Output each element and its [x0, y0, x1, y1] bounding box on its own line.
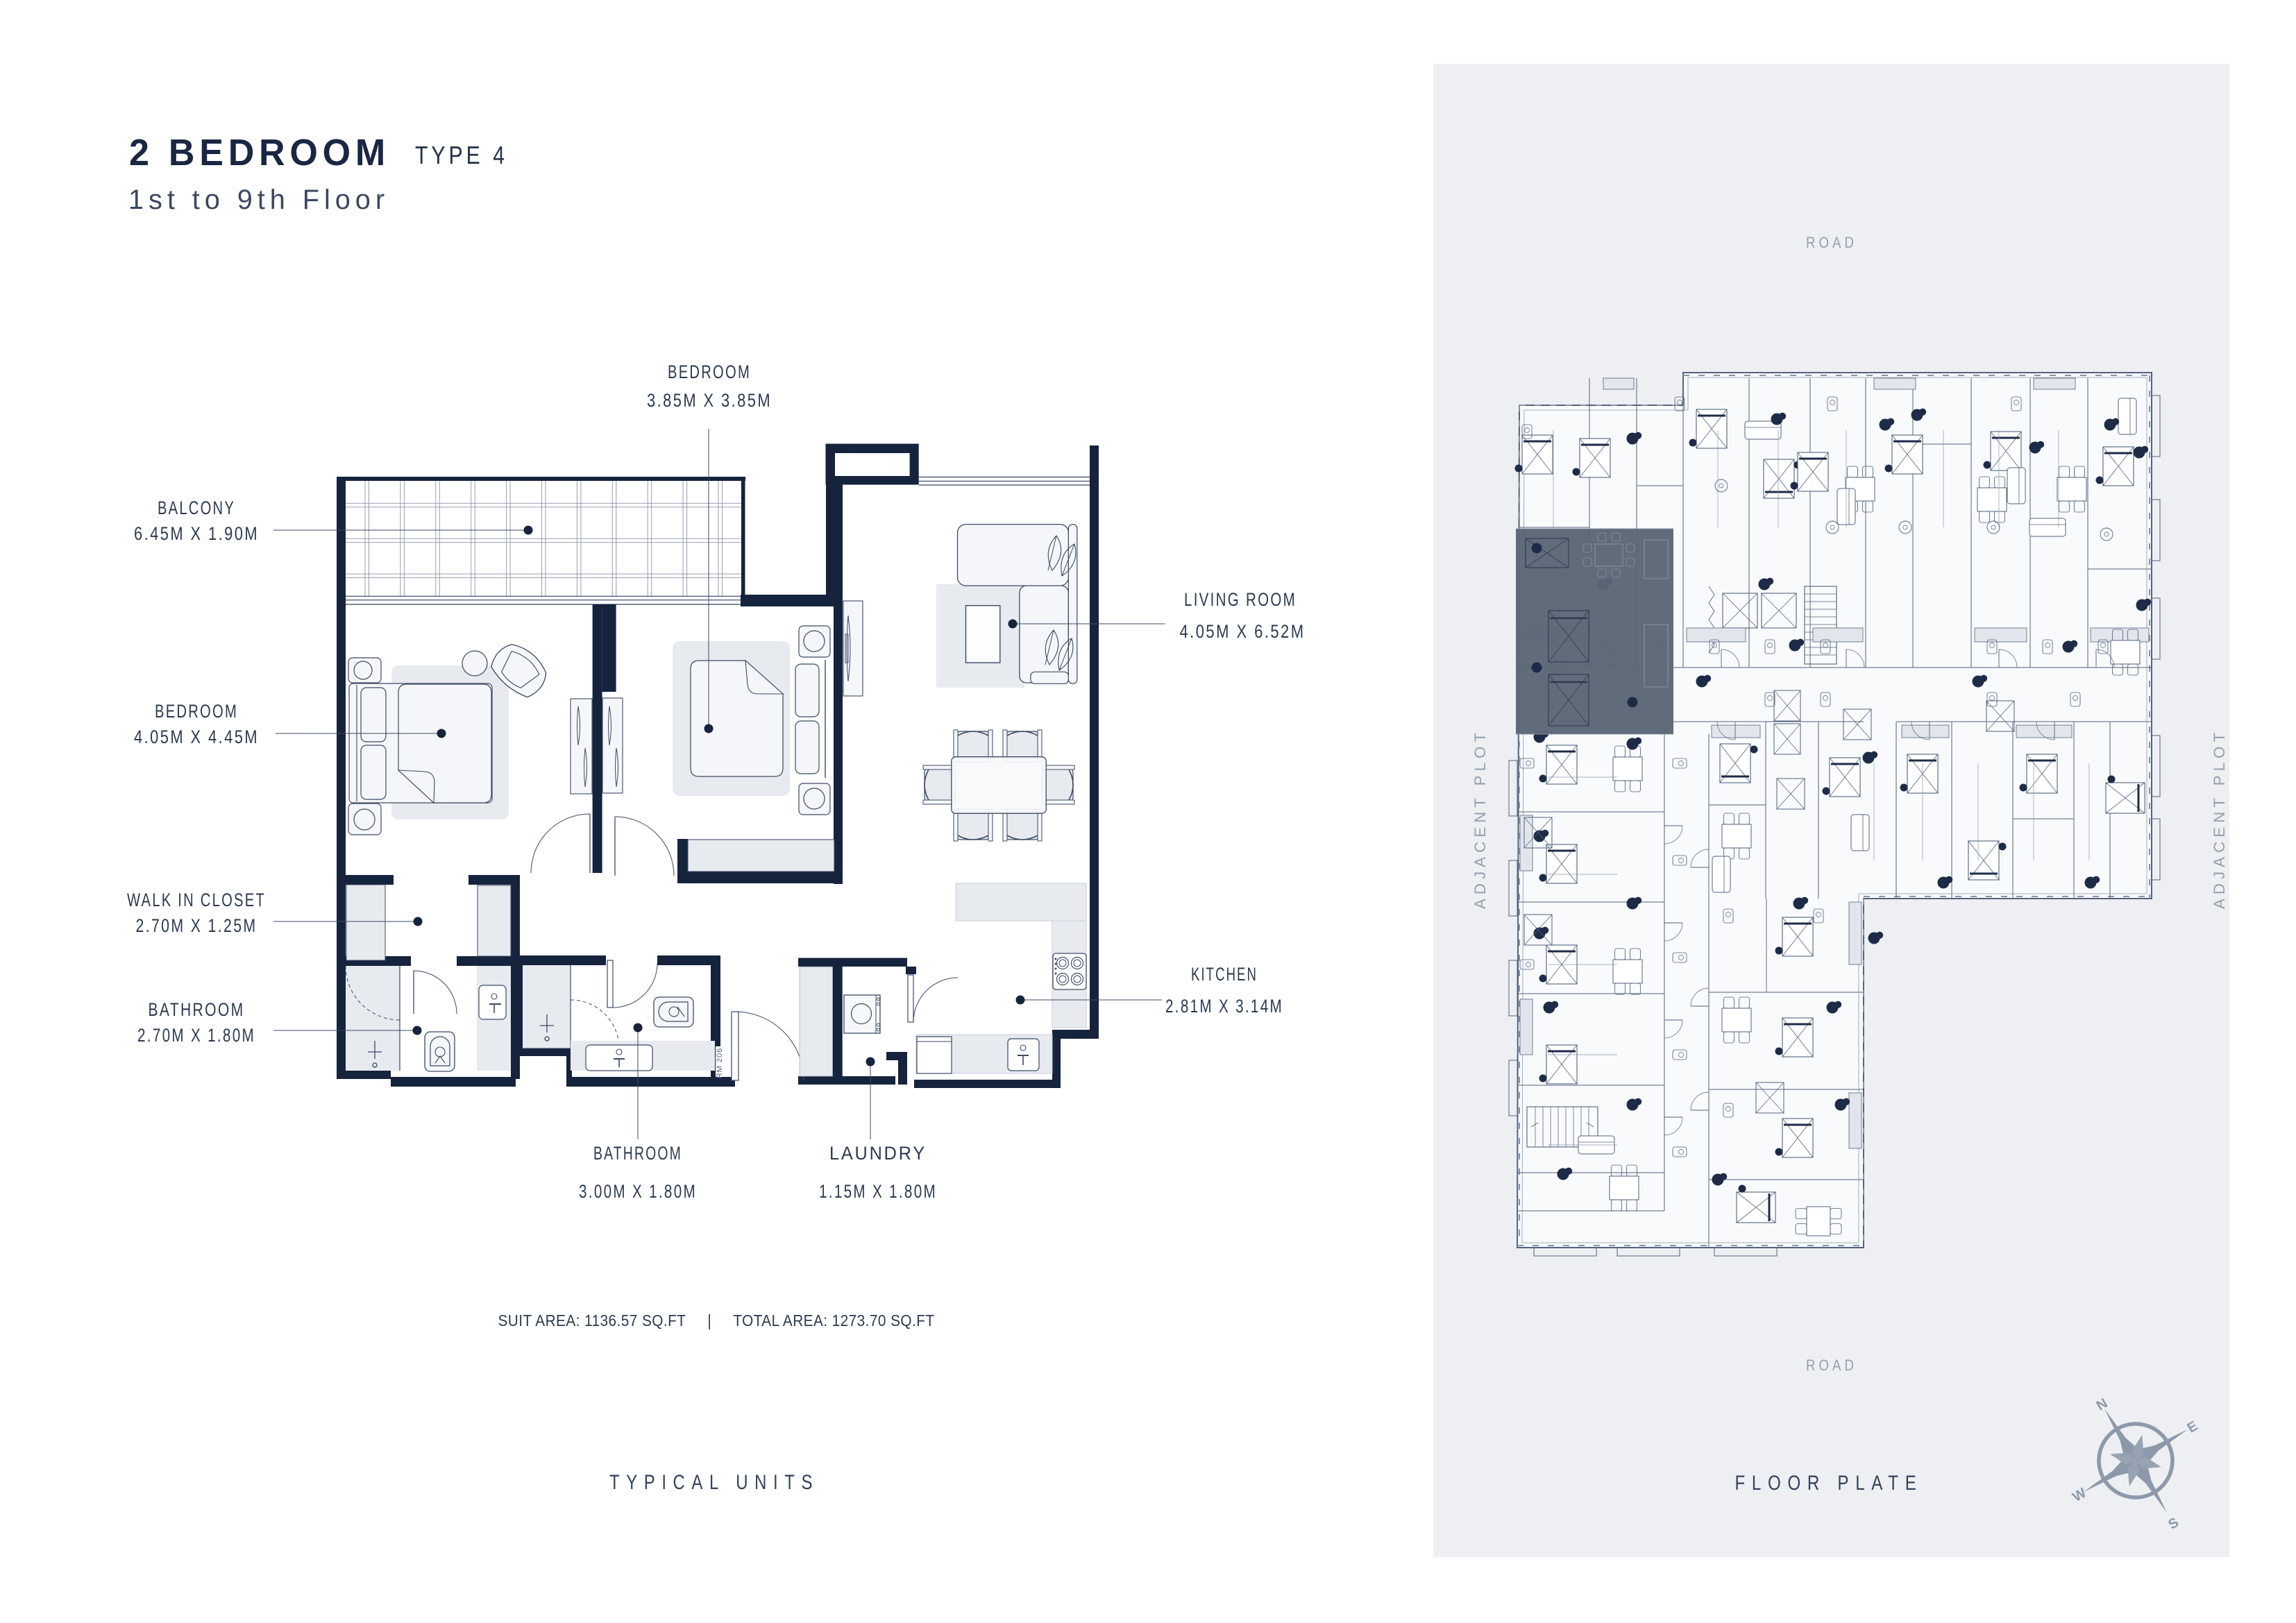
svg-text:ROAD: ROAD: [1806, 234, 1857, 251]
svg-text:KITCHEN: KITCHEN: [1191, 964, 1258, 985]
svg-text:ADJACENT PLOT: ADJACENT PLOT: [2211, 729, 2228, 909]
svg-text:WALK IN CLOSET: WALK IN CLOSET: [127, 890, 266, 910]
svg-text:RM 206: RM 206: [716, 1048, 724, 1079]
svg-text:TYPICAL UNITS: TYPICAL UNITS: [609, 1471, 819, 1494]
svg-text:BEDROOM: BEDROOM: [155, 701, 238, 722]
svg-text:LIVING ROOM: LIVING ROOM: [1184, 589, 1297, 610]
svg-text:3.85M X 3.85M: 3.85M X 3.85M: [647, 390, 772, 411]
svg-text:2.70M X 1.25M: 2.70M X 1.25M: [136, 915, 258, 936]
svg-text:LAUNDRY: LAUNDRY: [829, 1143, 927, 1164]
svg-text:4.05M X 4.45M: 4.05M X 4.45M: [134, 726, 259, 747]
svg-text:2 BEDROOM: 2 BEDROOM: [129, 132, 390, 173]
svg-text:1st to 9th Floor: 1st to 9th Floor: [128, 185, 389, 215]
svg-text:6.45M X 1.90M: 6.45M X 1.90M: [134, 523, 259, 544]
svg-text:3.00M X 1.80M: 3.00M X 1.80M: [579, 1181, 697, 1202]
svg-text:BATHROOM: BATHROOM: [149, 999, 245, 1020]
svg-text:ROAD: ROAD: [1806, 1357, 1857, 1374]
svg-text:FLOOR PLATE: FLOOR PLATE: [1735, 1472, 1923, 1495]
svg-text:SUIT AREA: 1136.57 SQ.FT |: SUIT AREA: 1136.57 SQ.FT | TOTAL AREA: 1…: [498, 1311, 935, 1329]
svg-text:4.05M X 6.52M: 4.05M X 6.52M: [1180, 621, 1306, 642]
svg-text:BATHROOM: BATHROOM: [593, 1143, 682, 1164]
svg-text:BALCONY: BALCONY: [158, 498, 235, 518]
svg-text:TYPE 4: TYPE 4: [415, 141, 508, 169]
svg-text:2.81M X 3.14M: 2.81M X 3.14M: [1165, 996, 1283, 1017]
svg-text:ADJACENT PLOT: ADJACENT PLOT: [1471, 729, 1489, 909]
svg-text:1.15M X 1.80M: 1.15M X 1.80M: [819, 1181, 937, 1202]
svg-text:BEDROOM: BEDROOM: [668, 362, 751, 382]
svg-text:2.70M X 1.80M: 2.70M X 1.80M: [137, 1025, 255, 1046]
